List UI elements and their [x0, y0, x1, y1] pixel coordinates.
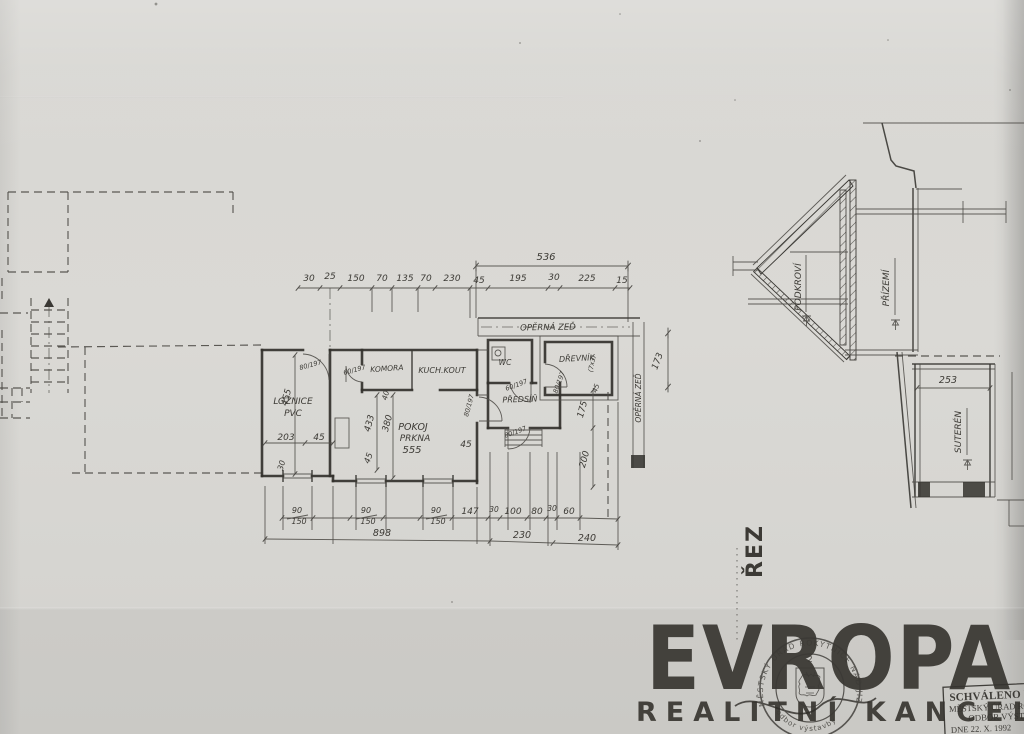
- dim: 150: [347, 274, 364, 284]
- dim: 25: [324, 272, 336, 282]
- dim-total-898: 898: [373, 528, 391, 539]
- dim: 135: [396, 274, 413, 284]
- win-dim: 90: [431, 506, 441, 515]
- door-dim: 60/197: [342, 363, 367, 377]
- dim-100: 100: [504, 507, 521, 517]
- room-wc: WC: [499, 358, 512, 367]
- level-mark: [963, 460, 972, 470]
- stamp-number: 2: [807, 655, 813, 665]
- door-arc: [479, 397, 502, 421]
- door-dim: 80/197: [462, 393, 476, 418]
- dim-30: 30: [547, 504, 557, 513]
- dim: 70: [376, 274, 388, 284]
- door-dim: 80/197: [551, 369, 567, 394]
- dim-253: 253: [939, 375, 957, 386]
- dashed-outbuilding-outline: [2, 192, 233, 420]
- dim-45: 45: [460, 440, 472, 450]
- dim: 70: [420, 274, 432, 284]
- win-dim: 150: [430, 517, 445, 526]
- approval-line4: DNE 22. X. 1992: [951, 722, 1012, 734]
- door-dim: 80/197: [503, 424, 528, 440]
- plan-windows: [283, 470, 453, 487]
- door-dim: 80/197: [298, 358, 323, 372]
- dim-total-536: 536: [536, 252, 555, 263]
- dim-175: 175: [576, 400, 590, 419]
- top-dimension-chain: 536 30 25 150 70 135 70 230 45 195 30 22…: [298, 252, 630, 350]
- win-dim: 150: [291, 517, 306, 526]
- dim: 45: [473, 276, 485, 286]
- room-drevnik-note: (7x3): [587, 354, 598, 372]
- label-suteren: SUTERÉN: [952, 411, 964, 453]
- dim: 30: [303, 274, 315, 284]
- retaining-wall-label-vertical: OPĚRNÁ ZEĎ: [634, 373, 643, 422]
- blueprint-drawing: EVROPA REALITNÍ KANCELÁŘ: [0, 0, 1024, 734]
- level-mark: [891, 320, 900, 330]
- dim-60: 60: [563, 507, 575, 517]
- dim-45: 45: [313, 433, 325, 443]
- wall-end-cap: [631, 455, 645, 468]
- stamp-arc-top-text: MĚSTSKÝ ÚŘAD ROKYTNICE NAD JIZEROU: [0, 0, 864, 708]
- dim-45: 45: [591, 382, 602, 394]
- window-symbol: [423, 475, 453, 487]
- dim: 15: [616, 276, 628, 286]
- dim-173: 173: [650, 351, 665, 371]
- dim-30: 30: [489, 505, 499, 514]
- room-loznice-floor: PVC: [284, 409, 303, 419]
- dim: 230: [443, 274, 460, 284]
- dim-30: 30: [276, 459, 287, 471]
- dim-total-230: 230: [513, 530, 531, 541]
- dim-203: 203: [277, 433, 294, 443]
- cross-section-drawing: PODKROVÍ PŘÍZEMÍ: [733, 123, 1024, 362]
- room-pokoj-area: 555: [402, 445, 421, 456]
- dim-147: 147: [461, 507, 478, 517]
- chimney: [335, 418, 349, 448]
- dim-total-240: 240: [578, 533, 596, 544]
- label-prizemi: PŘÍZEMÍ: [880, 268, 892, 306]
- room-pokoj-floor: PRKNA: [400, 434, 430, 444]
- dim: 30: [548, 273, 560, 283]
- dashed-left-details: [0, 388, 30, 418]
- svg-text:MĚSTSKÝ ÚŘAD ROKYTNICE NAD JIZ: MĚSTSKÝ ÚŘAD ROKYTNICE NAD JIZEROU: [0, 0, 864, 708]
- label-podkrovi: PODKROVÍ: [792, 262, 804, 311]
- stair-direction-arrow: [44, 298, 54, 307]
- dim-80: 80: [531, 507, 543, 517]
- room-predsin: PŘEDSÍŇ: [502, 392, 537, 404]
- dashed-staircase: [0, 298, 68, 393]
- grade-line: [882, 123, 916, 188]
- room-kuchkout: KUCH.KOUT: [418, 366, 466, 375]
- dim: 195: [509, 274, 526, 284]
- dim-433: 433: [363, 414, 377, 433]
- dim-45: 45: [363, 452, 376, 466]
- win-dim: 150: [360, 517, 375, 526]
- window-symbol: [356, 475, 386, 487]
- win-dim: 90: [292, 506, 302, 515]
- section-title-rez: ŘEZ: [742, 524, 768, 578]
- room-pokoj: POKOJ: [398, 422, 428, 433]
- retaining-wall-label: OPĚRNÁ ZEĎ: [520, 321, 576, 334]
- room-komora: KOMORA: [370, 363, 404, 374]
- window-symbol: [283, 470, 312, 482]
- door-dim: 60/197: [504, 377, 529, 393]
- basement-section: 253 SUTERÉN: [895, 352, 1024, 526]
- dim: 225: [578, 274, 595, 284]
- win-dim: 90: [361, 506, 371, 515]
- dashed-terrace-outline: [58, 345, 262, 473]
